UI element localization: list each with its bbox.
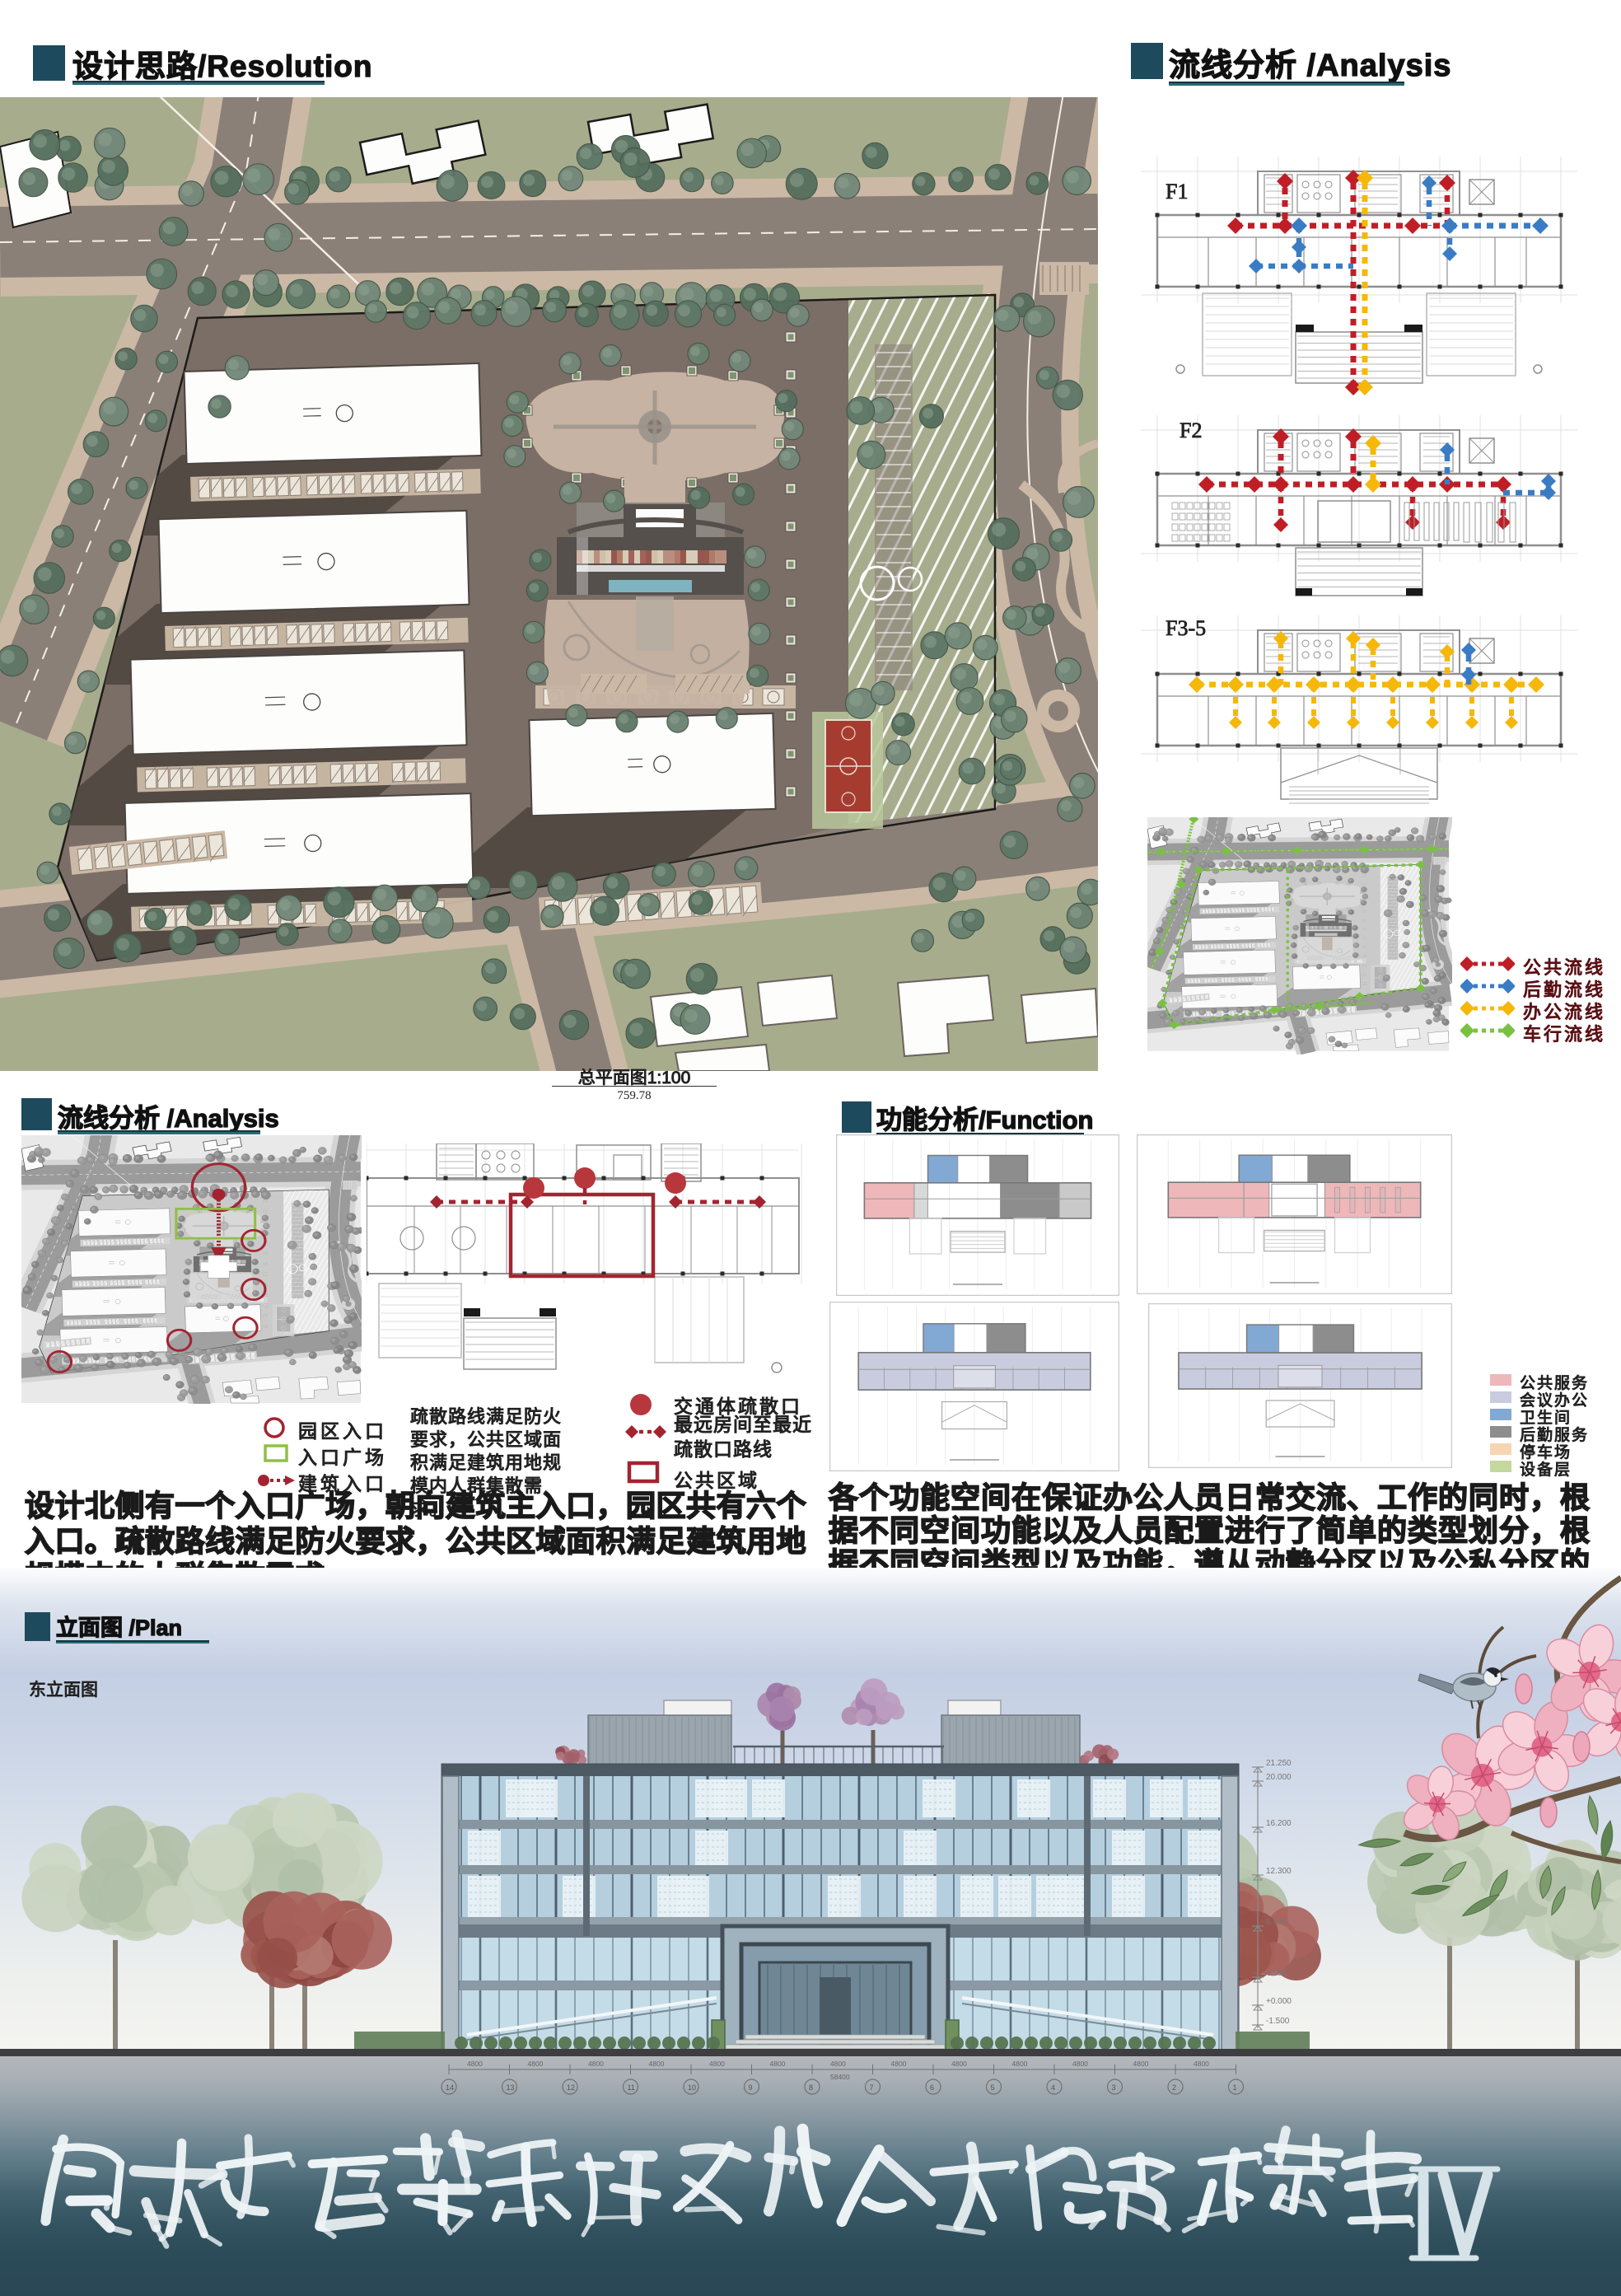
svg-text:4800: 4800: [770, 2060, 786, 2068]
svg-text:4800: 4800: [951, 2060, 967, 2068]
svg-text:4800: 4800: [467, 2060, 483, 2068]
svg-text:4800: 4800: [709, 2060, 725, 2068]
svg-text:5: 5: [991, 2083, 995, 2092]
svg-text:11: 11: [628, 2083, 635, 2092]
svg-text:4800: 4800: [891, 2060, 907, 2068]
svg-text:3: 3: [1112, 2083, 1116, 2092]
svg-text:4800: 4800: [1012, 2060, 1028, 2068]
svg-text:12: 12: [567, 2083, 575, 2092]
svg-text:4800: 4800: [649, 2060, 665, 2068]
svg-text:14: 14: [446, 2083, 454, 2092]
svg-text:58400: 58400: [830, 2073, 850, 2081]
svg-text:4800: 4800: [1194, 2060, 1209, 2068]
svg-text:4800: 4800: [830, 2060, 846, 2068]
svg-text:1: 1: [1233, 2083, 1237, 2092]
svg-text:4.500: 4.500: [1266, 1969, 1287, 1978]
svg-text:9: 9: [749, 2083, 753, 2092]
svg-text:4800: 4800: [1072, 2060, 1088, 2068]
svg-text:4: 4: [1051, 2083, 1055, 2092]
svg-text:4800: 4800: [1133, 2060, 1149, 2068]
svg-text:+0.000: +0.000: [1266, 1997, 1292, 2006]
svg-text:2: 2: [1172, 2083, 1176, 2092]
svg-text:6: 6: [930, 2083, 934, 2092]
svg-text:4800: 4800: [528, 2060, 544, 2068]
svg-text:7: 7: [870, 2083, 874, 2092]
svg-text:13: 13: [507, 2083, 515, 2092]
svg-text:-1.500: -1.500: [1266, 2017, 1290, 2026]
svg-text:4800: 4800: [588, 2060, 604, 2068]
svg-text:8: 8: [809, 2083, 813, 2092]
svg-text:10: 10: [688, 2083, 696, 2092]
